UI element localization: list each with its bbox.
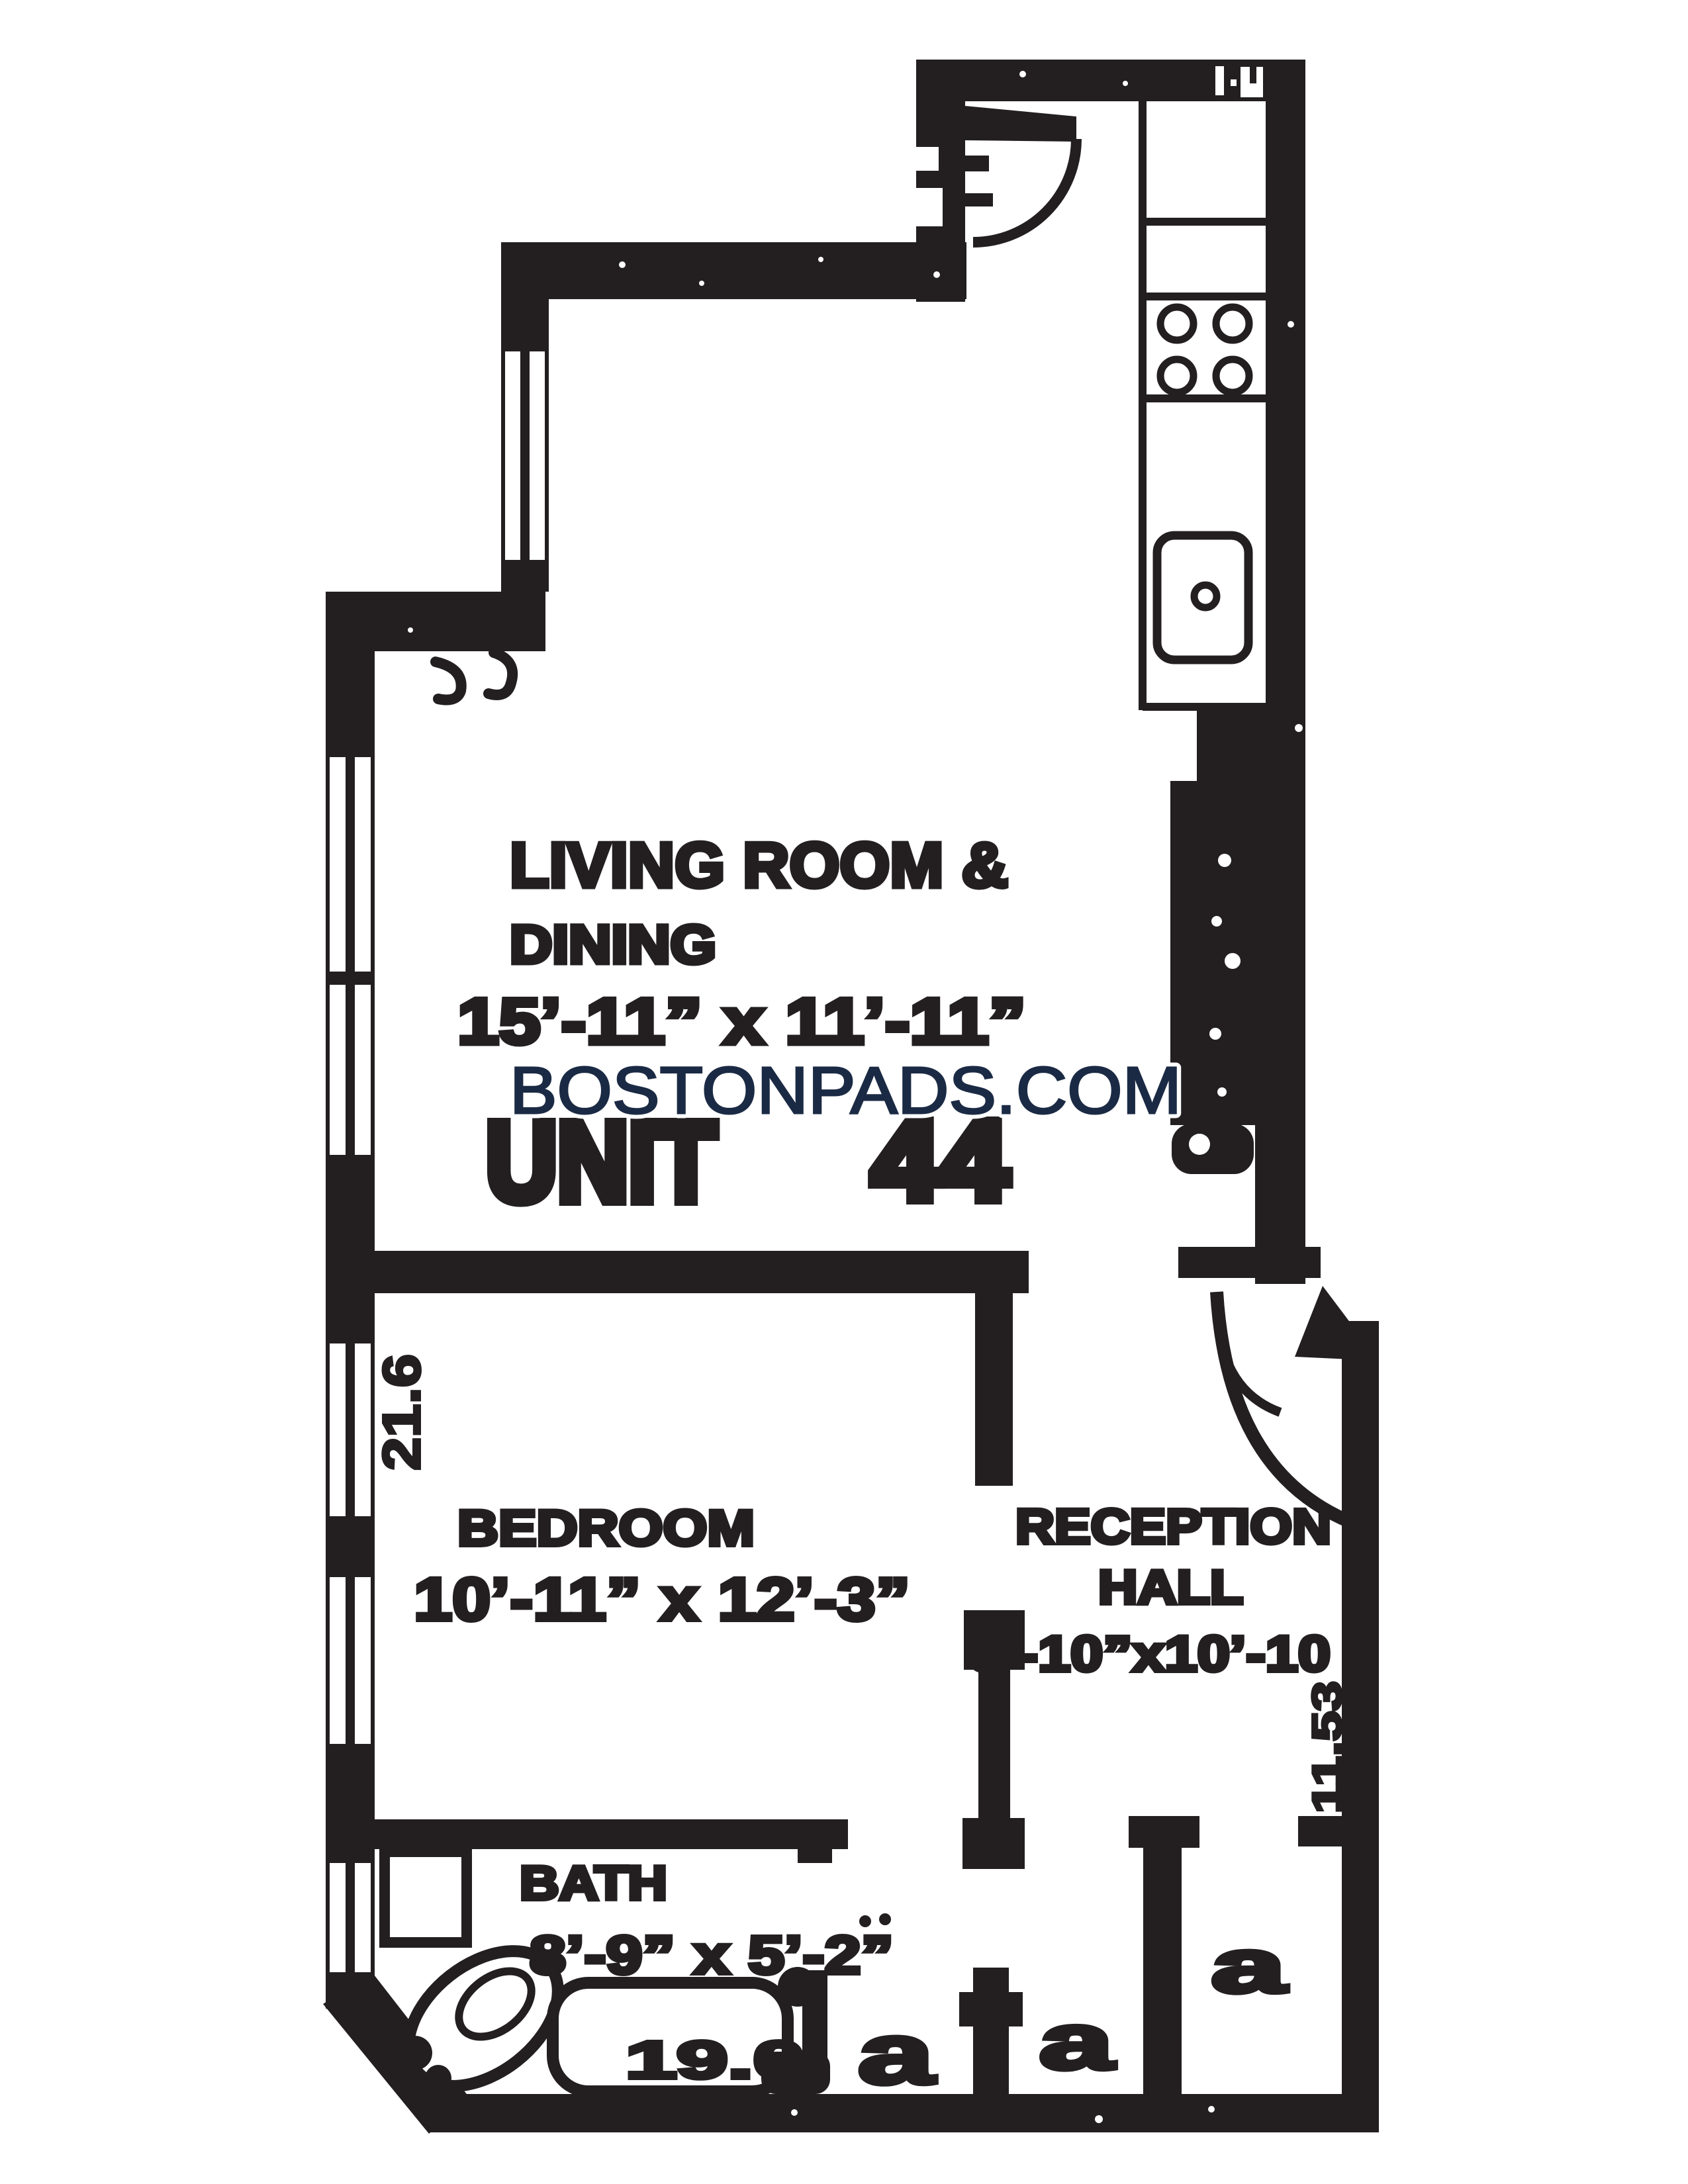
svg-text:BATH: BATH xyxy=(520,1857,667,1910)
svg-text:11.53: 11.53 xyxy=(1305,1681,1350,1813)
svg-text:a: a xyxy=(1211,1924,1287,2009)
svg-text:10’-11” x 12’-3”: 10’-11” x 12’-3” xyxy=(414,1566,910,1633)
svg-text:DINING: DINING xyxy=(510,915,716,975)
svg-text:RECEPTION: RECEPTION xyxy=(1015,1499,1331,1554)
svg-text:5’-10”x10’-10: 5’-10”x10’-10 xyxy=(970,1626,1331,1682)
svg-text:19.0: 19.0 xyxy=(626,2030,804,2089)
svg-text:LIVING ROOM &: LIVING ROOM & xyxy=(510,830,1008,901)
svg-text:a: a xyxy=(858,2005,936,2102)
svg-text:HALL: HALL xyxy=(1098,1561,1243,1614)
svg-text:21.6: 21.6 xyxy=(372,1354,431,1471)
svg-text:BOSTONPADS.COM: BOSTONPADS.COM xyxy=(510,1054,1182,1128)
svg-text:8’-9” x 5’-2”: 8’-9” x 5’-2” xyxy=(530,1925,894,1985)
svg-text:BEDROOM: BEDROOM xyxy=(457,1500,755,1557)
svg-text:15’-11” x 11’-11”: 15’-11” x 11’-11” xyxy=(457,985,1026,1058)
svg-text:a: a xyxy=(1039,1997,1115,2086)
